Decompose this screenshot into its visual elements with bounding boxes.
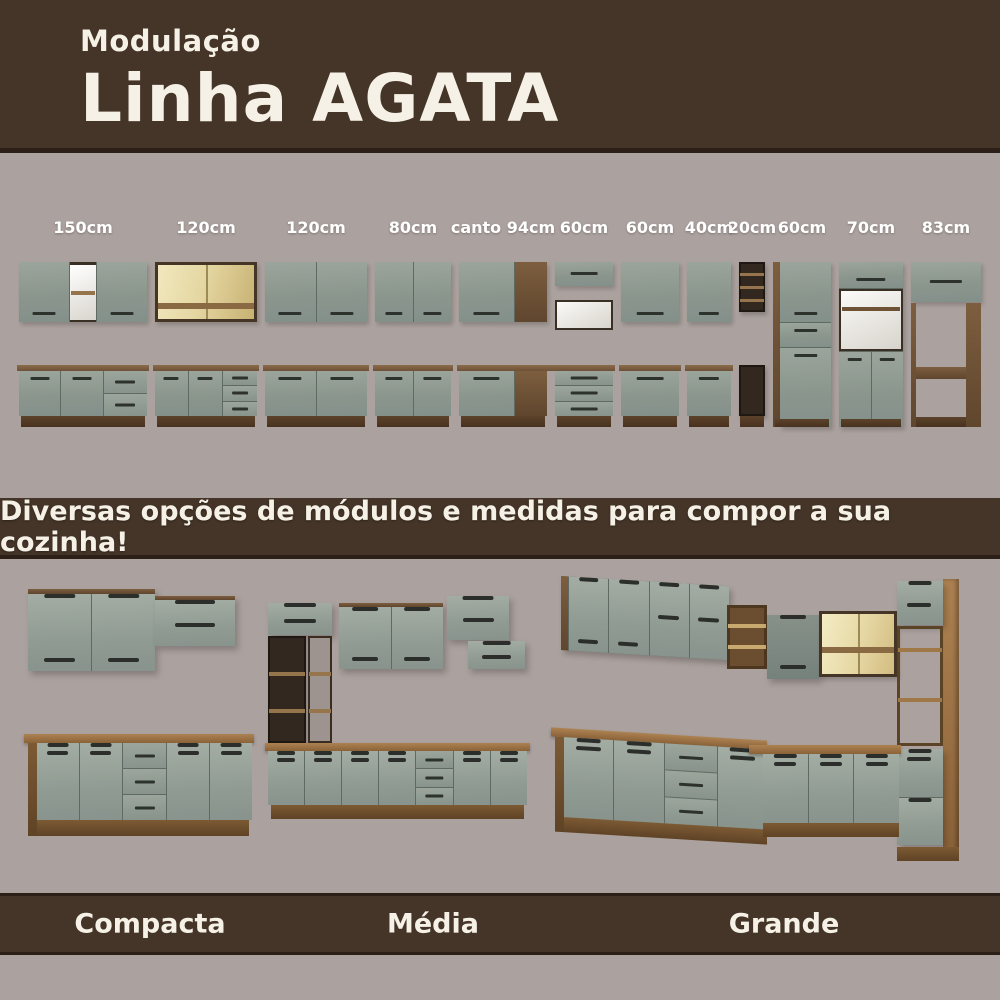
- flip-door: [555, 262, 613, 286]
- cabinet-body: [268, 751, 527, 805]
- counter-top: [265, 743, 530, 751]
- cabinet-door: [268, 603, 332, 635]
- door-handle: [463, 618, 494, 622]
- base-cabinet: [375, 365, 451, 427]
- module-60cm-niche: 60cm: [555, 158, 613, 498]
- shelf: [822, 647, 894, 653]
- base-cabinet: [555, 365, 613, 427]
- cabinet-door: [718, 747, 767, 830]
- cabinet-door: [317, 262, 368, 322]
- wall-cabinet: [19, 262, 147, 322]
- kitchen-name-grande: Grande: [713, 909, 855, 940]
- cabinet-body: [564, 737, 767, 829]
- door-handle: [482, 655, 511, 659]
- modules-row: 150cm: [0, 158, 1000, 498]
- door-handle: [618, 641, 638, 646]
- module-70cm-tall: 70cm: [839, 158, 903, 498]
- door-handle: [866, 762, 888, 766]
- cabinet-door: [189, 371, 222, 416]
- cabinet-door: [167, 743, 209, 820]
- wood-side-panel: [966, 303, 981, 427]
- drawer: [555, 402, 613, 416]
- drawer: [665, 743, 717, 772]
- cabinet-door: [468, 641, 525, 669]
- door-pair: [339, 607, 443, 669]
- cabinet-door: [621, 262, 679, 322]
- drawer: [223, 402, 257, 416]
- shelf: [740, 299, 764, 302]
- drawer-stack: [123, 743, 167, 820]
- door-handle: [500, 758, 518, 762]
- cabinet-door: [92, 594, 155, 671]
- narrow-base-unit: [739, 365, 765, 416]
- cabinet-door: [872, 352, 904, 427]
- cabinet-door: [80, 743, 122, 820]
- cabinet-door: [839, 262, 903, 288]
- drawer-stack: [223, 371, 257, 416]
- cabinet-body: [375, 371, 451, 416]
- drawer: [555, 386, 613, 400]
- cabinet-door: [19, 262, 69, 322]
- cabinet-door: [690, 584, 729, 660]
- cabinet-door: [897, 749, 943, 797]
- kitchen-name-media: Média: [367, 909, 499, 940]
- cabinet-door: [447, 596, 509, 640]
- header: Modulação Linha AGATA: [0, 0, 1000, 153]
- wood-cross-panel: [916, 367, 966, 379]
- door-handle: [284, 619, 316, 623]
- cabinet-door: [37, 743, 79, 820]
- door-handle: [578, 639, 598, 644]
- base-cabinet: [687, 365, 731, 427]
- wood-side-panel: [773, 262, 780, 427]
- door-handle: [47, 751, 68, 755]
- door-handle: [627, 749, 652, 755]
- open-niche: [555, 300, 613, 330]
- kitchens-section: [0, 559, 1000, 893]
- door-handle: [404, 657, 430, 661]
- fridge-frame: [911, 262, 981, 427]
- kitchen-name-compacta: Compacta: [68, 909, 232, 940]
- drawer: [123, 769, 167, 794]
- cabinet-door: [375, 371, 413, 416]
- size-label: 150cm: [5, 218, 161, 237]
- door-handle: [576, 746, 601, 752]
- cabinet-door: [780, 323, 831, 347]
- module-80cm: 80cm: [375, 158, 451, 498]
- wall-cabinet: [447, 596, 509, 640]
- open-frame: [911, 303, 981, 427]
- cabinet-door: [317, 371, 368, 416]
- cabinet-door: [569, 576, 608, 652]
- drawer-stack: [416, 751, 454, 805]
- cabinet-body: [19, 262, 147, 322]
- wall-cabinet: [621, 262, 679, 322]
- cabinet-body: [621, 262, 679, 322]
- drawer: [665, 770, 717, 799]
- corner-base-cabinet: [459, 365, 547, 427]
- shelf: [309, 709, 331, 713]
- cabinet-body: [555, 371, 613, 416]
- cabinet-door: [854, 754, 899, 823]
- wall-cabinet: [28, 589, 155, 671]
- cabinet-door: [614, 740, 663, 823]
- module-60cm-tall: 60cm: [773, 158, 831, 498]
- door-handle: [314, 758, 332, 762]
- cabinet-body: [687, 262, 731, 322]
- cabinet-door: [414, 262, 452, 322]
- drawer: [665, 797, 717, 826]
- cabinet-body: [911, 262, 981, 302]
- wood-corner-panel: [515, 371, 547, 416]
- cabinet-door: [375, 262, 413, 322]
- module-60cm-door: 60cm: [621, 158, 679, 498]
- cabinet-door: [28, 594, 91, 671]
- tall-open-unit: [268, 603, 332, 743]
- wood-side-panel: [561, 576, 568, 650]
- wood-side-panel: [28, 743, 37, 836]
- base-run: [28, 734, 252, 836]
- cabinet-body: [621, 371, 679, 416]
- cabinet-door: [564, 737, 613, 820]
- door-handle: [388, 758, 406, 762]
- cabinet-door: [339, 607, 391, 669]
- open-frame: [897, 626, 943, 746]
- cabinet-body: [265, 371, 367, 416]
- shelf: [158, 303, 254, 309]
- base-cabinet: [621, 365, 679, 427]
- plinth: [897, 847, 959, 861]
- wood-base: [916, 417, 966, 427]
- plinth: [740, 416, 764, 427]
- plinth: [157, 416, 255, 427]
- door-handle: [351, 758, 369, 762]
- cabinet-door: [414, 371, 452, 416]
- glass-doors: [155, 262, 257, 322]
- shelf: [269, 672, 305, 676]
- cabinet-door: [379, 751, 415, 805]
- cabinet-door: [454, 751, 490, 805]
- base-run: [763, 745, 899, 837]
- plinth: [21, 416, 145, 427]
- cabinet-door: [459, 262, 514, 322]
- glass-divider: [206, 265, 208, 319]
- base-cabinet: [265, 365, 367, 427]
- cabinet-door: [687, 371, 731, 416]
- module-120cm-doors: 120cm: [265, 158, 367, 498]
- wall-cabinet: [468, 641, 525, 669]
- module-120cm-glass: 120cm: [155, 158, 257, 498]
- door-handle: [221, 751, 242, 755]
- base-cabinet: [155, 365, 257, 427]
- size-label: 83cm: [897, 218, 995, 237]
- cabinet-door: [491, 751, 527, 805]
- cabinet-body: [265, 262, 367, 322]
- plinth: [377, 416, 449, 427]
- cabinet-body: [459, 371, 547, 416]
- drawer-stack: [555, 371, 613, 416]
- kitchen-media: [260, 559, 535, 893]
- door-handle: [774, 762, 796, 766]
- shelf: [898, 648, 942, 652]
- door-handle: [352, 657, 378, 661]
- flip-wall-cabinet: [555, 262, 613, 286]
- module-20cm: 20cm: [739, 158, 765, 498]
- drawer-stack: [665, 743, 717, 826]
- door-handle: [907, 603, 931, 607]
- tall-pantry-column: [897, 579, 959, 861]
- wall-cabinet: [268, 603, 332, 635]
- drawer: [416, 751, 454, 768]
- module-150cm: 150cm: [19, 158, 147, 498]
- cabinet-door: [268, 751, 304, 805]
- cabinet-door: [650, 581, 689, 657]
- plinth: [623, 416, 677, 427]
- cabinet-door: [265, 371, 316, 416]
- drawer: [104, 394, 147, 416]
- door-handle: [698, 618, 718, 623]
- drawer: [223, 386, 257, 400]
- cabinet-body: [37, 743, 252, 820]
- cabinet-door: [392, 607, 444, 669]
- door-pair: [839, 352, 903, 427]
- product-sheet: Modulação Linha AGATA 150cm: [0, 0, 1000, 1000]
- drawer-stack: [104, 371, 147, 416]
- corner-wall-cabinet: [459, 262, 547, 322]
- drawer: [123, 743, 167, 768]
- wall-cabinet: [687, 262, 731, 322]
- base-doors: [897, 749, 943, 845]
- shelf: [898, 698, 942, 702]
- cabinet-door: [155, 371, 188, 416]
- cabinet-door: [809, 754, 854, 823]
- door-handle: [44, 658, 76, 662]
- module-83cm-tall: 83cm: [911, 158, 981, 498]
- cabinet-body: [375, 262, 451, 322]
- footer: Compacta Média Grande: [0, 893, 1000, 955]
- cabinet-door: [767, 615, 819, 679]
- cabinet-body: [780, 262, 831, 427]
- wall-cabinet: [155, 596, 235, 646]
- base-run: [268, 743, 527, 819]
- banner-text: Diversas opções de módulos e medidas par…: [0, 496, 1000, 558]
- cabinet-body: [19, 371, 147, 416]
- cabinet-body: [555, 262, 613, 286]
- shelf: [842, 307, 900, 311]
- plinth: [841, 419, 901, 427]
- cabinet-body: [763, 754, 899, 823]
- cabinet-door: [459, 371, 514, 416]
- oven-niche: [839, 289, 903, 351]
- cabinet-door: [780, 262, 831, 322]
- cabinet-door: [97, 262, 147, 322]
- counter-top: [749, 745, 901, 754]
- plinth: [271, 805, 524, 819]
- door-handle: [907, 757, 931, 761]
- glass-divider: [858, 614, 860, 674]
- header-kicker: Modulação: [80, 24, 1000, 58]
- door-handle: [178, 751, 199, 755]
- door-handle: [780, 665, 806, 669]
- cabinet-door: [265, 262, 316, 322]
- door-handle: [463, 758, 481, 762]
- module-40cm: 40cm: [687, 158, 731, 498]
- door-handle: [820, 762, 842, 766]
- open-shelf: [70, 262, 96, 322]
- door-handle: [277, 758, 295, 762]
- cabinet-body: [687, 371, 731, 416]
- wall-cabinet: [265, 262, 367, 322]
- glass-wall-cabinet: [155, 262, 257, 322]
- oven-tower: [839, 262, 903, 427]
- cabinet-body: [459, 262, 547, 322]
- shelf: [309, 672, 331, 676]
- cabinet-door: [687, 262, 731, 322]
- drawer: [555, 371, 613, 385]
- wood-side-panel: [911, 303, 916, 427]
- door-handle: [108, 658, 140, 662]
- cabinet-door: [155, 600, 235, 646]
- cabinet-door: [19, 371, 60, 416]
- cabinet-door: [839, 352, 871, 427]
- glass-wall-cabinet: [819, 611, 897, 677]
- drawer: [223, 371, 257, 385]
- plinth: [689, 416, 729, 427]
- cabinet-door: [210, 743, 252, 820]
- shelf: [728, 624, 766, 628]
- plinth: [557, 416, 611, 427]
- wall-cabinet: [561, 576, 729, 660]
- door-handle: [90, 751, 111, 755]
- drawer: [123, 795, 167, 820]
- glass-doors: [819, 611, 897, 677]
- shelf: [740, 286, 764, 289]
- base-run: [555, 728, 767, 845]
- open-frame-column: [308, 636, 332, 743]
- plinth: [461, 416, 545, 427]
- drawer: [416, 788, 454, 805]
- cabinet-door: [897, 581, 943, 625]
- cabinet-body: [839, 262, 903, 427]
- page-title: Linha AGATA: [80, 60, 1000, 137]
- cabinet-door: [897, 798, 943, 846]
- base-cabinet: [19, 365, 147, 427]
- cabinet-door: [305, 751, 341, 805]
- plinth: [763, 823, 899, 837]
- cabinet-door: [763, 754, 808, 823]
- cabinet-door: [911, 262, 981, 302]
- counter-top: [24, 734, 254, 743]
- plinth: [267, 416, 365, 427]
- wall-cabinet: [339, 603, 443, 669]
- shelf: [728, 645, 766, 649]
- door-handle: [175, 623, 215, 627]
- shelf: [740, 273, 764, 276]
- cabinet-door: [342, 751, 378, 805]
- wall-cabinet: [767, 615, 819, 679]
- wall-cabinet: [375, 262, 451, 322]
- open-shelf-tower: [739, 262, 765, 312]
- corner-open-shelf: [727, 605, 767, 669]
- cabinet-door: [61, 371, 102, 416]
- banner: Diversas opções de módulos e medidas par…: [0, 498, 1000, 559]
- cabinet-body: [155, 371, 257, 416]
- wood-corner-panel: [515, 262, 547, 322]
- cabinet-door: [609, 579, 648, 655]
- plinth: [775, 419, 829, 427]
- drawer: [104, 371, 147, 393]
- shelf: [269, 709, 305, 713]
- door-pair: [28, 594, 155, 671]
- door-handle: [730, 755, 755, 761]
- wall-cabinet: [897, 581, 943, 625]
- wood-side-panel: [943, 579, 959, 861]
- kitchen-grande: [545, 559, 990, 893]
- drawer: [416, 769, 454, 786]
- cabinet-door: [621, 371, 679, 416]
- cabinet-door: [780, 348, 831, 427]
- plinth: [37, 820, 249, 836]
- kitchen-compacta: [10, 559, 260, 893]
- shelf: [71, 291, 95, 295]
- module-canto-94cm: canto 94cm: [459, 158, 547, 498]
- open-shelf-column: [268, 636, 306, 743]
- wood-side-panel: [555, 737, 564, 833]
- tall-cabinet: [773, 262, 831, 427]
- door-handle: [658, 615, 678, 620]
